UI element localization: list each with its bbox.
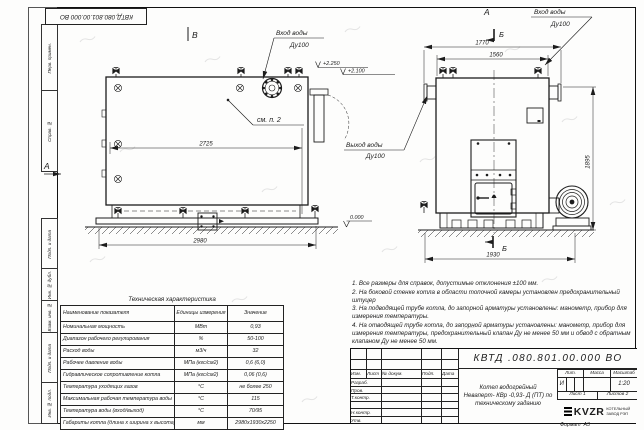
margin-label: Перв. примен. <box>47 43 52 74</box>
change-record-band <box>351 349 458 369</box>
margin-box-sprav: Справ. № <box>41 90 58 172</box>
note-3: 3. На подводящей трубе котла, до запорно… <box>352 305 634 321</box>
hdr-podp: Подп. <box>421 369 441 378</box>
lit-label: Лит. <box>557 369 583 377</box>
notes-block: 1. Все размеры для справок, допустимые о… <box>352 280 634 347</box>
sig-utv: Утв. <box>351 416 381 424</box>
note-4: 4. На отводящей трубе котла, до запорной… <box>352 322 634 345</box>
product-name-line3: техническому заданию <box>475 400 541 408</box>
margin-box-podp-data-2: Подп. и дата <box>41 332 58 384</box>
table-row: Максимальная рабочая температура воды°С1… <box>61 393 283 405</box>
product-name-cell: Котел водогрейный Неваперт- КВр -0,93- Д… <box>458 369 557 423</box>
doc-number: КВТД .080.801.00.000 ВО <box>473 353 622 364</box>
tech-table-title: Техническая характеристика <box>60 296 284 303</box>
scale-label: Масштаб <box>610 369 637 377</box>
table-row: Габариты котла (длина х ширина х высота)… <box>61 417 283 429</box>
doc-number-cell: КВТД .080.801.00.000 ВО <box>458 349 637 369</box>
col-header-value: Значение <box>227 306 283 321</box>
sheets-cell: Листов 2 <box>597 391 637 399</box>
product-name-line2: Неваперт- КВр -0,93- Д (ПТ) по <box>464 392 553 400</box>
sheet-cell: Лист 1 <box>557 391 597 399</box>
tech-table-header-row: Наименование показателя Единицы измерени… <box>61 306 283 321</box>
table-row: Диапазон рабочего регулирования%50-100 <box>61 333 283 345</box>
margin-label: Инв. № подл. <box>47 389 52 418</box>
table-row: Температура воды (вход/выход)°С70/95 <box>61 405 283 417</box>
drawing-sheet: Перв. примен. Справ. № Подп. и дата Инв.… <box>0 0 644 430</box>
hdr-data: Дата <box>441 369 458 378</box>
margin-box-inv-podl: Инв. № подл. <box>41 382 58 424</box>
margin-label: Инв. № дубл. <box>47 271 52 299</box>
note-1: 1. Все размеры для справок, допустимые о… <box>352 280 634 288</box>
org-logo-cell: KVZR КОТЕЛЬНЫЙ ЗАВОД РЭП <box>557 399 637 423</box>
table-row: Рабочее давление водыМПа (кгс/см2)0,6 (6… <box>61 357 283 369</box>
hdr-izm: Изм. <box>351 369 366 378</box>
sig-empty <box>351 401 381 409</box>
doc-number-rotated: КВТД.080.801.00.000 ВО <box>60 13 133 20</box>
sig-razrab: Разраб. <box>351 378 381 386</box>
lit-mass-scale: Лит. Масса Масштаб И 1:20 Лист 1 Листов … <box>557 369 637 423</box>
table-row: Гидравлическое сопротивление котлаМПа (к… <box>61 369 283 381</box>
table-row: Расход водым3/ч32 <box>61 345 283 357</box>
margin-box-podp-data-1: Подп. и дата <box>41 218 58 270</box>
sig-prov: Пров. <box>351 386 381 394</box>
margin-box-inv-dubl: Инв. № дубл. <box>41 268 58 302</box>
scale-value: 1:20 <box>610 377 637 391</box>
rotated-doc-number-stamp: КВТД.080.801.00.000 ВО <box>45 8 147 25</box>
col-header-name: Наименование показателя <box>61 306 174 321</box>
lit-value: И <box>557 377 566 391</box>
col-header-units: Единицы измерения <box>174 306 227 321</box>
margin-box-vzam-inv: Взам. инв. № <box>41 300 58 334</box>
kvzr-logo-icon <box>564 407 572 416</box>
mass-label: Масса <box>583 369 610 377</box>
table-row: Температура уходящих газов°Сне более 250 <box>61 381 283 393</box>
margin-label: Взам. инв. № <box>47 303 52 331</box>
logo-text: KVZR <box>574 406 605 418</box>
hdr-list: Лист <box>366 369 381 378</box>
sig-nkontr: Н.контр. <box>351 408 381 416</box>
margin-label: Подп. и дата <box>47 344 52 373</box>
logo-subtext: КОТЕЛЬНЫЙ ЗАВОД РЭП <box>606 407 630 415</box>
tech-characteristics: Техническая характеристика Наименование … <box>60 296 284 430</box>
sig-tkontr: Т.контр. <box>351 393 381 401</box>
margin-label: Справ. № <box>47 121 52 142</box>
hdr-docnum: № докум. <box>381 369 421 378</box>
margin-label: Подп. и дата <box>47 230 52 259</box>
tech-table: Наименование показателя Единицы измерени… <box>60 305 284 430</box>
format-note: Формат А3 <box>560 422 590 428</box>
signature-grid: Изм. Лист № докум. Подп. Дата Разраб. Пр… <box>351 369 458 423</box>
margin-box-perv-primen: Перв. примен. <box>41 24 58 92</box>
product-name-line1: Котел водогрейный <box>479 384 536 392</box>
table-row: Номинальная мощностьМВт0,93 <box>61 321 283 333</box>
note-2: 2. На боковой стенке котла в области топ… <box>352 289 634 305</box>
title-block: КВТД .080.801.00.000 ВО Изм. Лист № доку… <box>350 348 637 423</box>
